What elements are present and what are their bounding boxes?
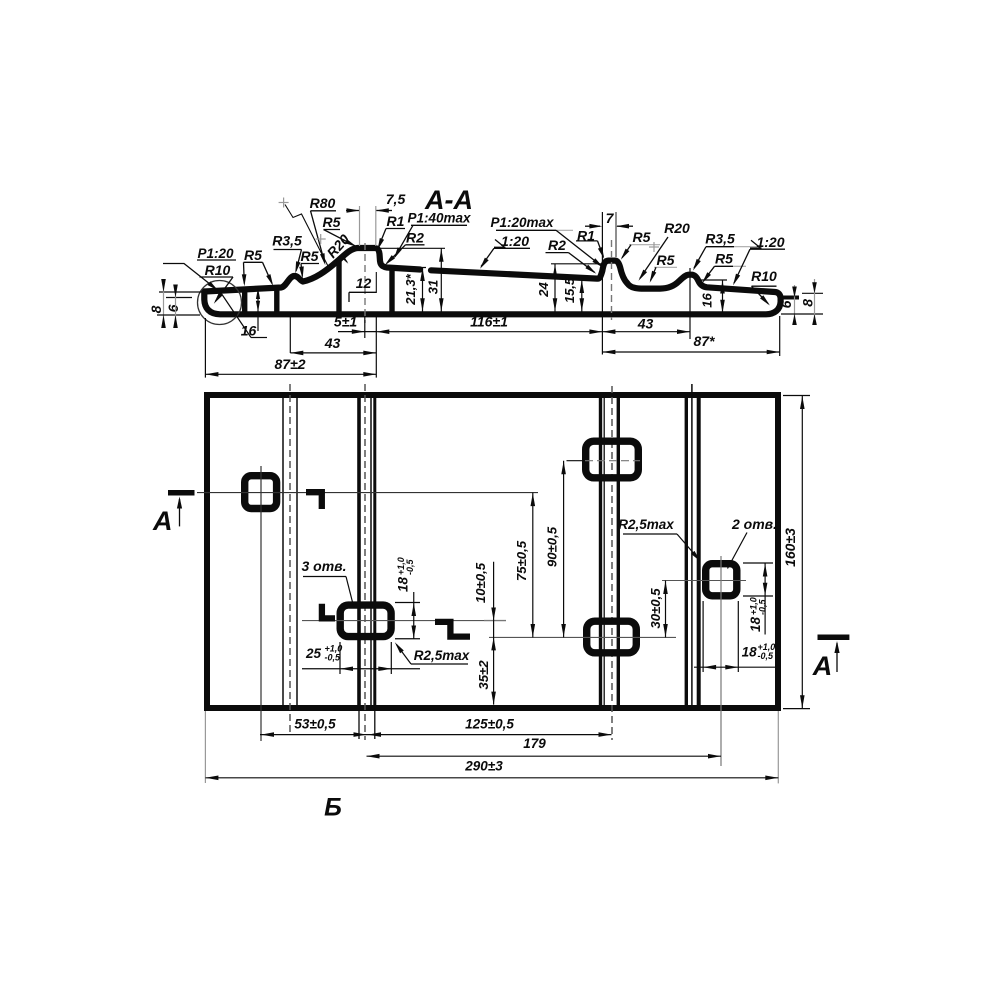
svg-text:-0,5: -0,5 xyxy=(758,651,775,661)
svg-text:87±2: 87±2 xyxy=(274,356,305,372)
svg-text:1:20: 1:20 xyxy=(501,233,529,249)
svg-text:179: 179 xyxy=(523,736,546,751)
svg-text:116±1: 116±1 xyxy=(470,314,508,330)
svg-text:R2,5max: R2,5max xyxy=(618,517,674,532)
svg-text:3 отв.: 3 отв. xyxy=(301,558,346,574)
svg-text:R3,5: R3,5 xyxy=(272,233,302,249)
svg-text:18: 18 xyxy=(396,576,411,592)
svg-text:R2: R2 xyxy=(548,237,566,253)
svg-text:18: 18 xyxy=(742,645,758,660)
svg-text:R2: R2 xyxy=(406,230,424,246)
svg-text:7,5: 7,5 xyxy=(386,191,406,207)
svg-text:R10: R10 xyxy=(751,268,777,284)
svg-text:R10: R10 xyxy=(205,262,231,278)
svg-text:Р1:20max: Р1:20max xyxy=(490,215,554,230)
svg-text:Б: Б xyxy=(324,794,342,822)
svg-text:43: 43 xyxy=(324,335,341,351)
svg-text:75±0,5: 75±0,5 xyxy=(514,540,529,581)
svg-text:43: 43 xyxy=(637,316,654,332)
svg-text:6: 6 xyxy=(165,304,181,312)
svg-text:R5: R5 xyxy=(323,214,341,230)
svg-text:R5: R5 xyxy=(244,247,262,263)
svg-text:A: A xyxy=(812,651,833,681)
svg-text:-0,5: -0,5 xyxy=(405,558,415,575)
svg-text:12: 12 xyxy=(356,275,372,291)
svg-text:53±0,5: 53±0,5 xyxy=(294,717,336,732)
svg-text:160±3: 160±3 xyxy=(782,528,798,567)
svg-text:R5: R5 xyxy=(301,248,319,264)
svg-text:R2,5max: R2,5max xyxy=(414,648,470,663)
svg-text:21,3*: 21,3* xyxy=(403,273,418,305)
svg-text:R5: R5 xyxy=(657,252,675,268)
svg-text:R5: R5 xyxy=(633,229,651,245)
svg-text:R3,5: R3,5 xyxy=(705,231,735,247)
svg-text:8: 8 xyxy=(148,305,164,313)
svg-text:A: A xyxy=(152,506,173,536)
svg-text:18: 18 xyxy=(748,616,763,632)
svg-text:35±2: 35±2 xyxy=(476,660,491,690)
svg-text:2 отв.: 2 отв. xyxy=(731,516,777,532)
svg-text:15,5: 15,5 xyxy=(562,277,577,303)
svg-text:R5: R5 xyxy=(715,251,733,267)
svg-text:30±0,5: 30±0,5 xyxy=(648,588,663,629)
svg-text:Р1:40max: Р1:40max xyxy=(407,211,471,226)
svg-text:10±0,5: 10±0,5 xyxy=(473,562,488,603)
svg-text:31: 31 xyxy=(426,280,441,294)
svg-text:90±0,5: 90±0,5 xyxy=(544,526,559,567)
svg-text:16: 16 xyxy=(700,293,715,308)
svg-text:-0,5: -0,5 xyxy=(758,598,768,615)
svg-text:24: 24 xyxy=(536,282,551,298)
svg-text:25: 25 xyxy=(305,646,322,661)
svg-text:-0,5: -0,5 xyxy=(325,653,342,663)
svg-text:R80: R80 xyxy=(310,195,336,211)
svg-text:8: 8 xyxy=(800,299,816,307)
svg-text:R1: R1 xyxy=(387,213,405,229)
svg-text:6: 6 xyxy=(778,300,794,308)
svg-text:5±1: 5±1 xyxy=(334,314,357,330)
svg-text:R20: R20 xyxy=(664,220,690,236)
svg-text:125±0,5: 125±0,5 xyxy=(465,717,514,732)
svg-text:7: 7 xyxy=(606,210,615,226)
svg-text:290±3: 290±3 xyxy=(464,759,503,774)
svg-text:87*: 87* xyxy=(693,333,715,349)
svg-text:Р1:20: Р1:20 xyxy=(197,246,234,261)
